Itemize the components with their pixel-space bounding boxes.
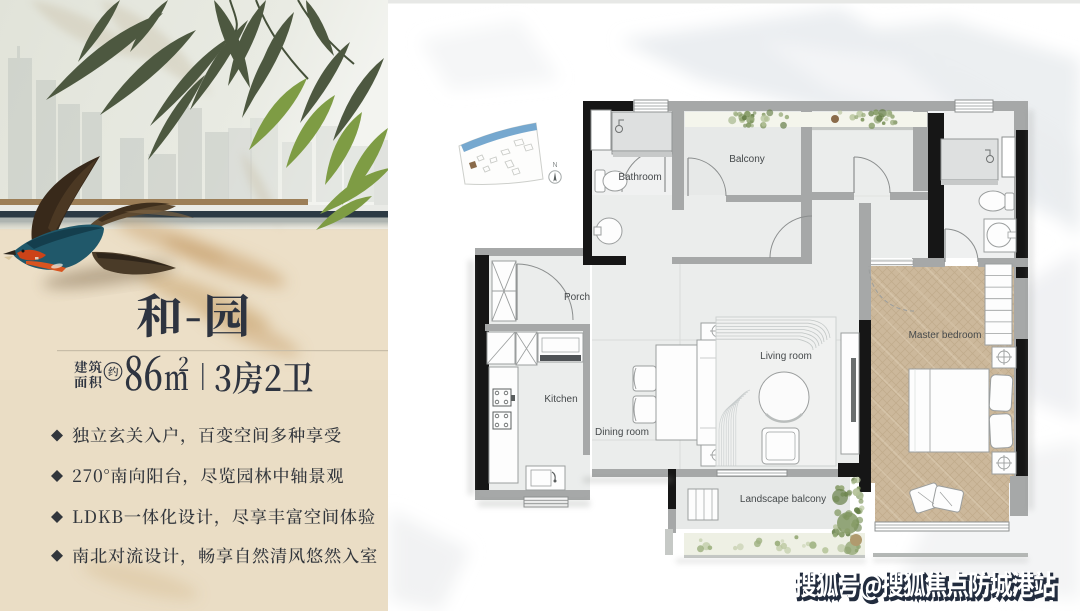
svg-text:Master bedroom: Master bedroom (909, 330, 982, 341)
svg-text:Living room: Living room (760, 351, 812, 362)
svg-text:N: N (552, 162, 557, 169)
svg-text:Balcony: Balcony (729, 154, 765, 165)
svg-text:Landscape balcony: Landscape balcony (740, 494, 826, 505)
svg-text:Kitchen: Kitchen (544, 394, 577, 405)
svg-text:Dining room: Dining room (595, 427, 649, 438)
svg-text:Porch: Porch (564, 292, 590, 303)
svg-text:Bathroom: Bathroom (618, 172, 661, 183)
